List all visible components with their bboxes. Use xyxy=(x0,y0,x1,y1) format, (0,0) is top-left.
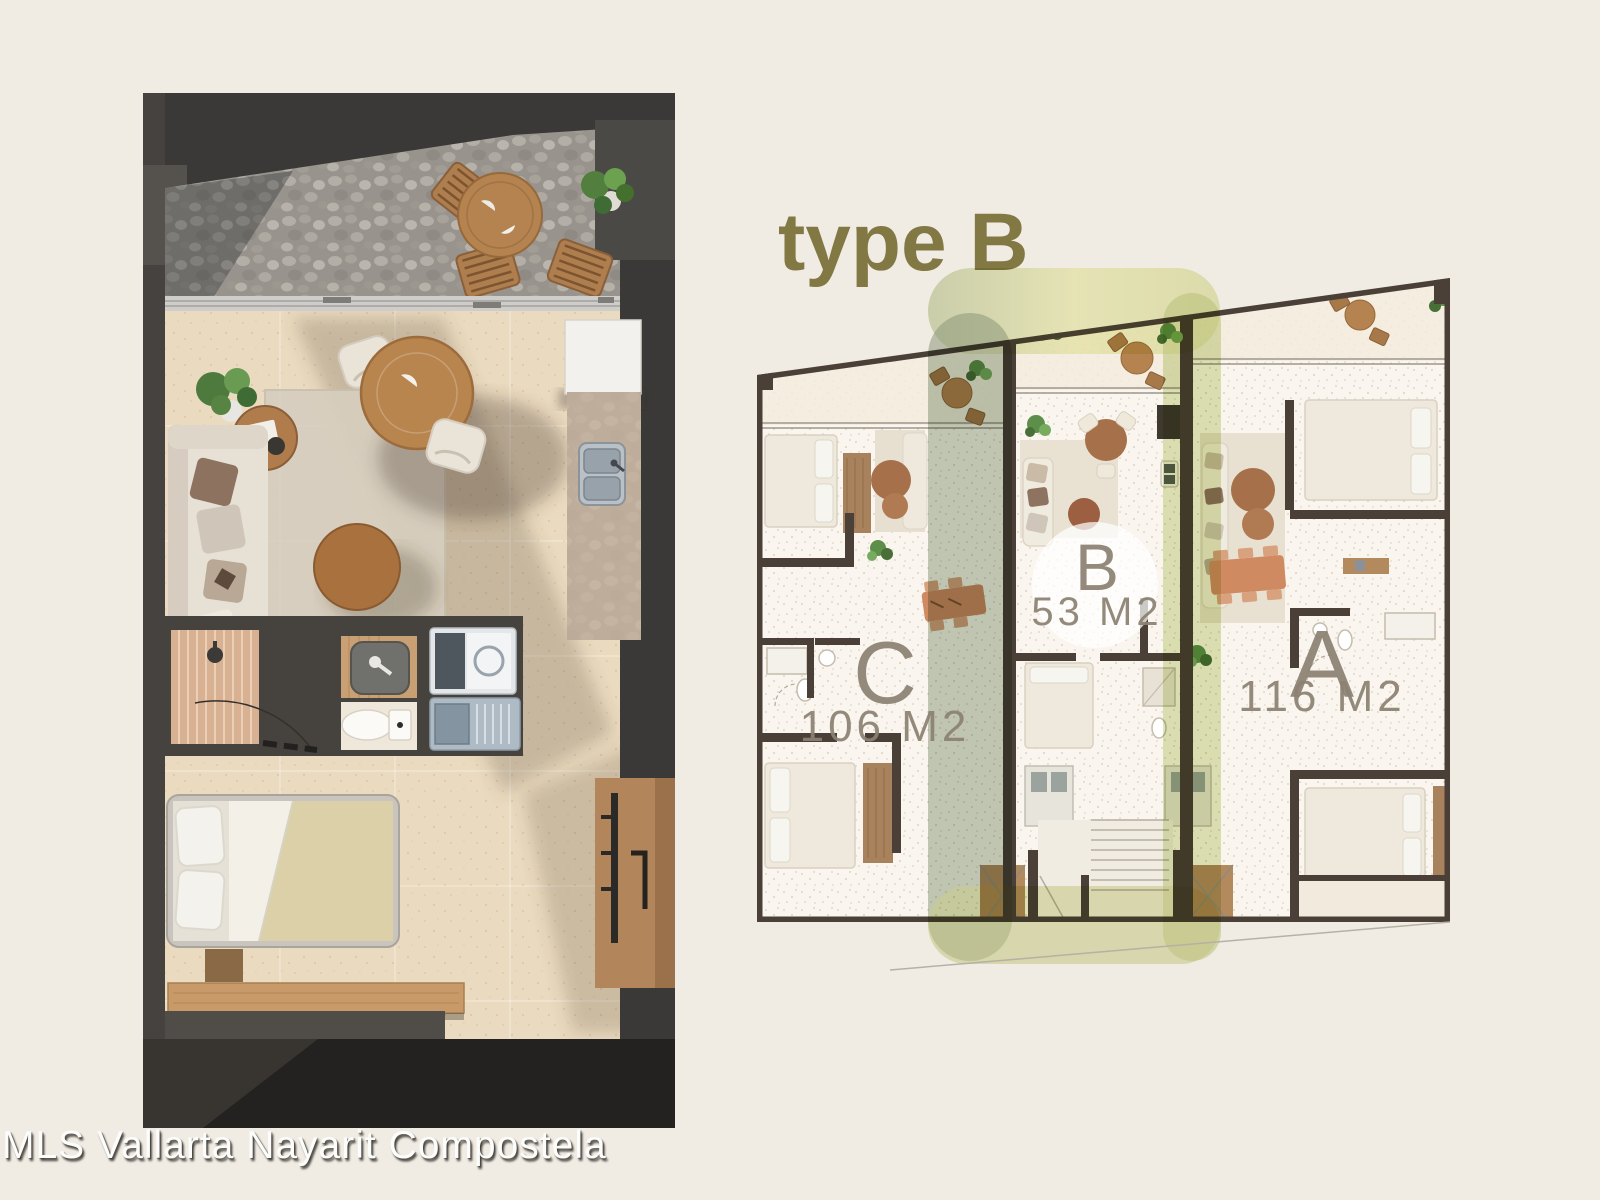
kitchen xyxy=(1343,558,1389,574)
pillow xyxy=(196,504,247,555)
bathroom xyxy=(165,616,523,756)
terrace-table xyxy=(458,173,542,257)
bed xyxy=(167,795,399,947)
toilet xyxy=(341,702,417,750)
apartment-floorplan-render xyxy=(143,93,675,1128)
bottom-wall xyxy=(165,1011,445,1041)
washer xyxy=(430,628,516,694)
watermark: MLS Vallarta Nayarit Compostela xyxy=(2,1124,607,1168)
sofa xyxy=(1023,458,1053,546)
bed xyxy=(1305,400,1437,500)
pillow xyxy=(175,805,225,866)
clothes-rail xyxy=(611,793,618,943)
sliding-door xyxy=(165,296,620,312)
wall-column xyxy=(1434,278,1450,304)
dryer xyxy=(430,698,520,750)
bed xyxy=(1025,663,1093,748)
round-table xyxy=(882,493,908,519)
unit-area-b: 53 M2 xyxy=(1031,590,1162,634)
bed xyxy=(765,763,855,868)
chair xyxy=(1097,464,1115,478)
building-floorplate: C 106 M2 B 53 M2 A 116 M2 xyxy=(745,258,1460,993)
balcony xyxy=(1290,880,1450,922)
vanity-sink xyxy=(341,636,417,698)
unit-area-c: 106 M2 xyxy=(800,702,971,751)
unit-area-a: 116 M2 xyxy=(1238,672,1406,721)
apartment-render-svg xyxy=(143,93,675,1128)
kitchen-sink xyxy=(579,443,625,505)
shower xyxy=(171,630,259,744)
round-table xyxy=(1231,468,1275,512)
floorplate-svg: C 106 M2 B 53 M2 A 116 M2 xyxy=(745,258,1460,993)
bed xyxy=(1305,788,1425,880)
bed xyxy=(765,435,837,527)
fridge-cabinet xyxy=(565,320,641,394)
nightstand xyxy=(205,949,243,982)
closet-cabinet xyxy=(1025,766,1073,826)
kitchen xyxy=(558,320,642,640)
slide-canvas: type B xyxy=(0,0,1600,1200)
wardrobe xyxy=(595,778,675,988)
round-table xyxy=(1242,508,1274,540)
counter-texture xyxy=(567,392,641,640)
coffee-table xyxy=(314,524,400,610)
pillow xyxy=(175,869,225,930)
wall-column xyxy=(757,368,773,390)
